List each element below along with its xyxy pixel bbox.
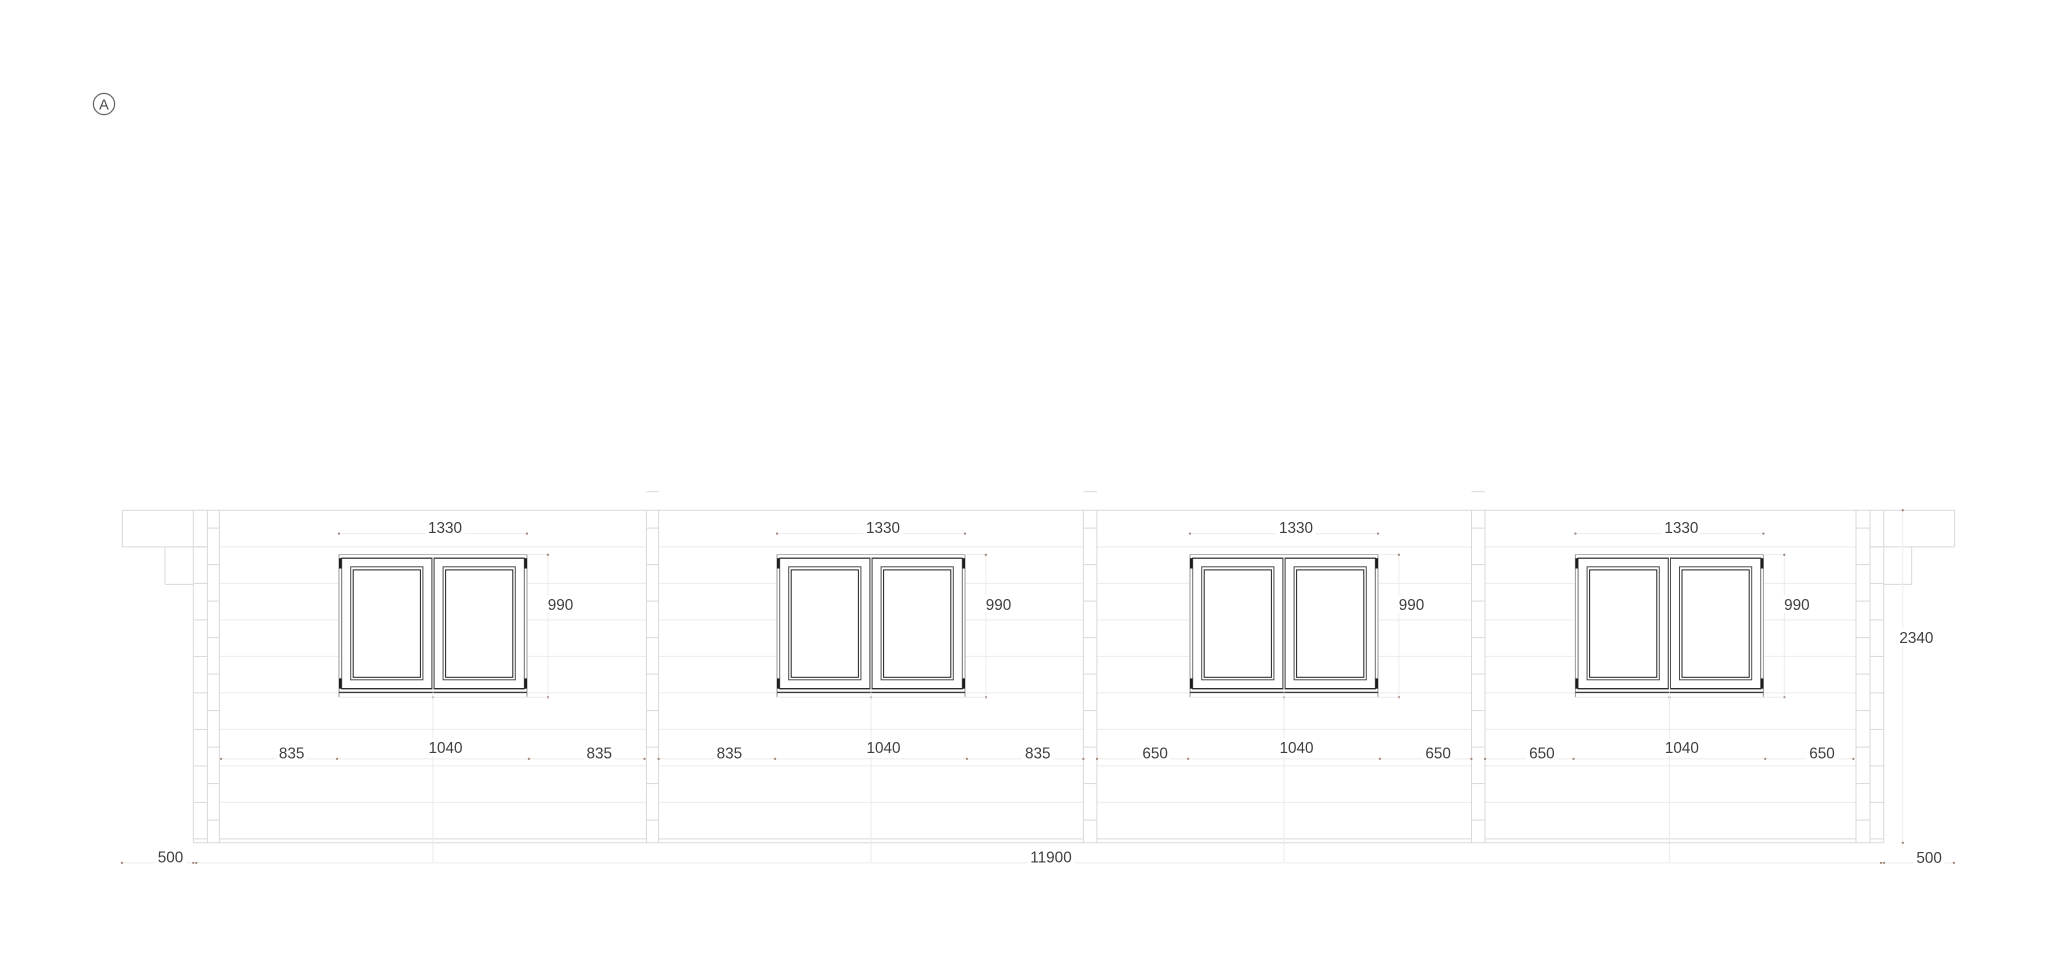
svg-text:1330: 1330 [428, 520, 462, 537]
svg-text:1330: 1330 [1664, 520, 1698, 537]
svg-text:650: 650 [1142, 745, 1168, 762]
svg-text:990: 990 [1784, 597, 1810, 614]
svg-text:1040: 1040 [1279, 740, 1313, 757]
svg-text:500: 500 [158, 850, 184, 867]
svg-text:990: 990 [1399, 597, 1425, 614]
svg-text:1330: 1330 [1279, 520, 1313, 537]
svg-text:11900: 11900 [1030, 849, 1071, 866]
svg-text:990: 990 [986, 597, 1012, 614]
svg-text:1040: 1040 [1665, 740, 1699, 757]
svg-text:835: 835 [1025, 745, 1051, 762]
svg-text:835: 835 [279, 745, 305, 762]
svg-text:650: 650 [1529, 745, 1555, 762]
svg-text:500: 500 [1916, 850, 1942, 867]
svg-text:835: 835 [717, 745, 743, 762]
svg-text:990: 990 [548, 597, 574, 614]
svg-text:2340: 2340 [1899, 630, 1933, 647]
svg-text:1330: 1330 [866, 520, 900, 537]
svg-text:650: 650 [1809, 745, 1835, 762]
svg-text:1040: 1040 [866, 740, 900, 757]
svg-text:835: 835 [587, 745, 613, 762]
svg-text:650: 650 [1425, 745, 1451, 762]
svg-text:1040: 1040 [428, 740, 462, 757]
svg-text:A: A [99, 97, 109, 113]
